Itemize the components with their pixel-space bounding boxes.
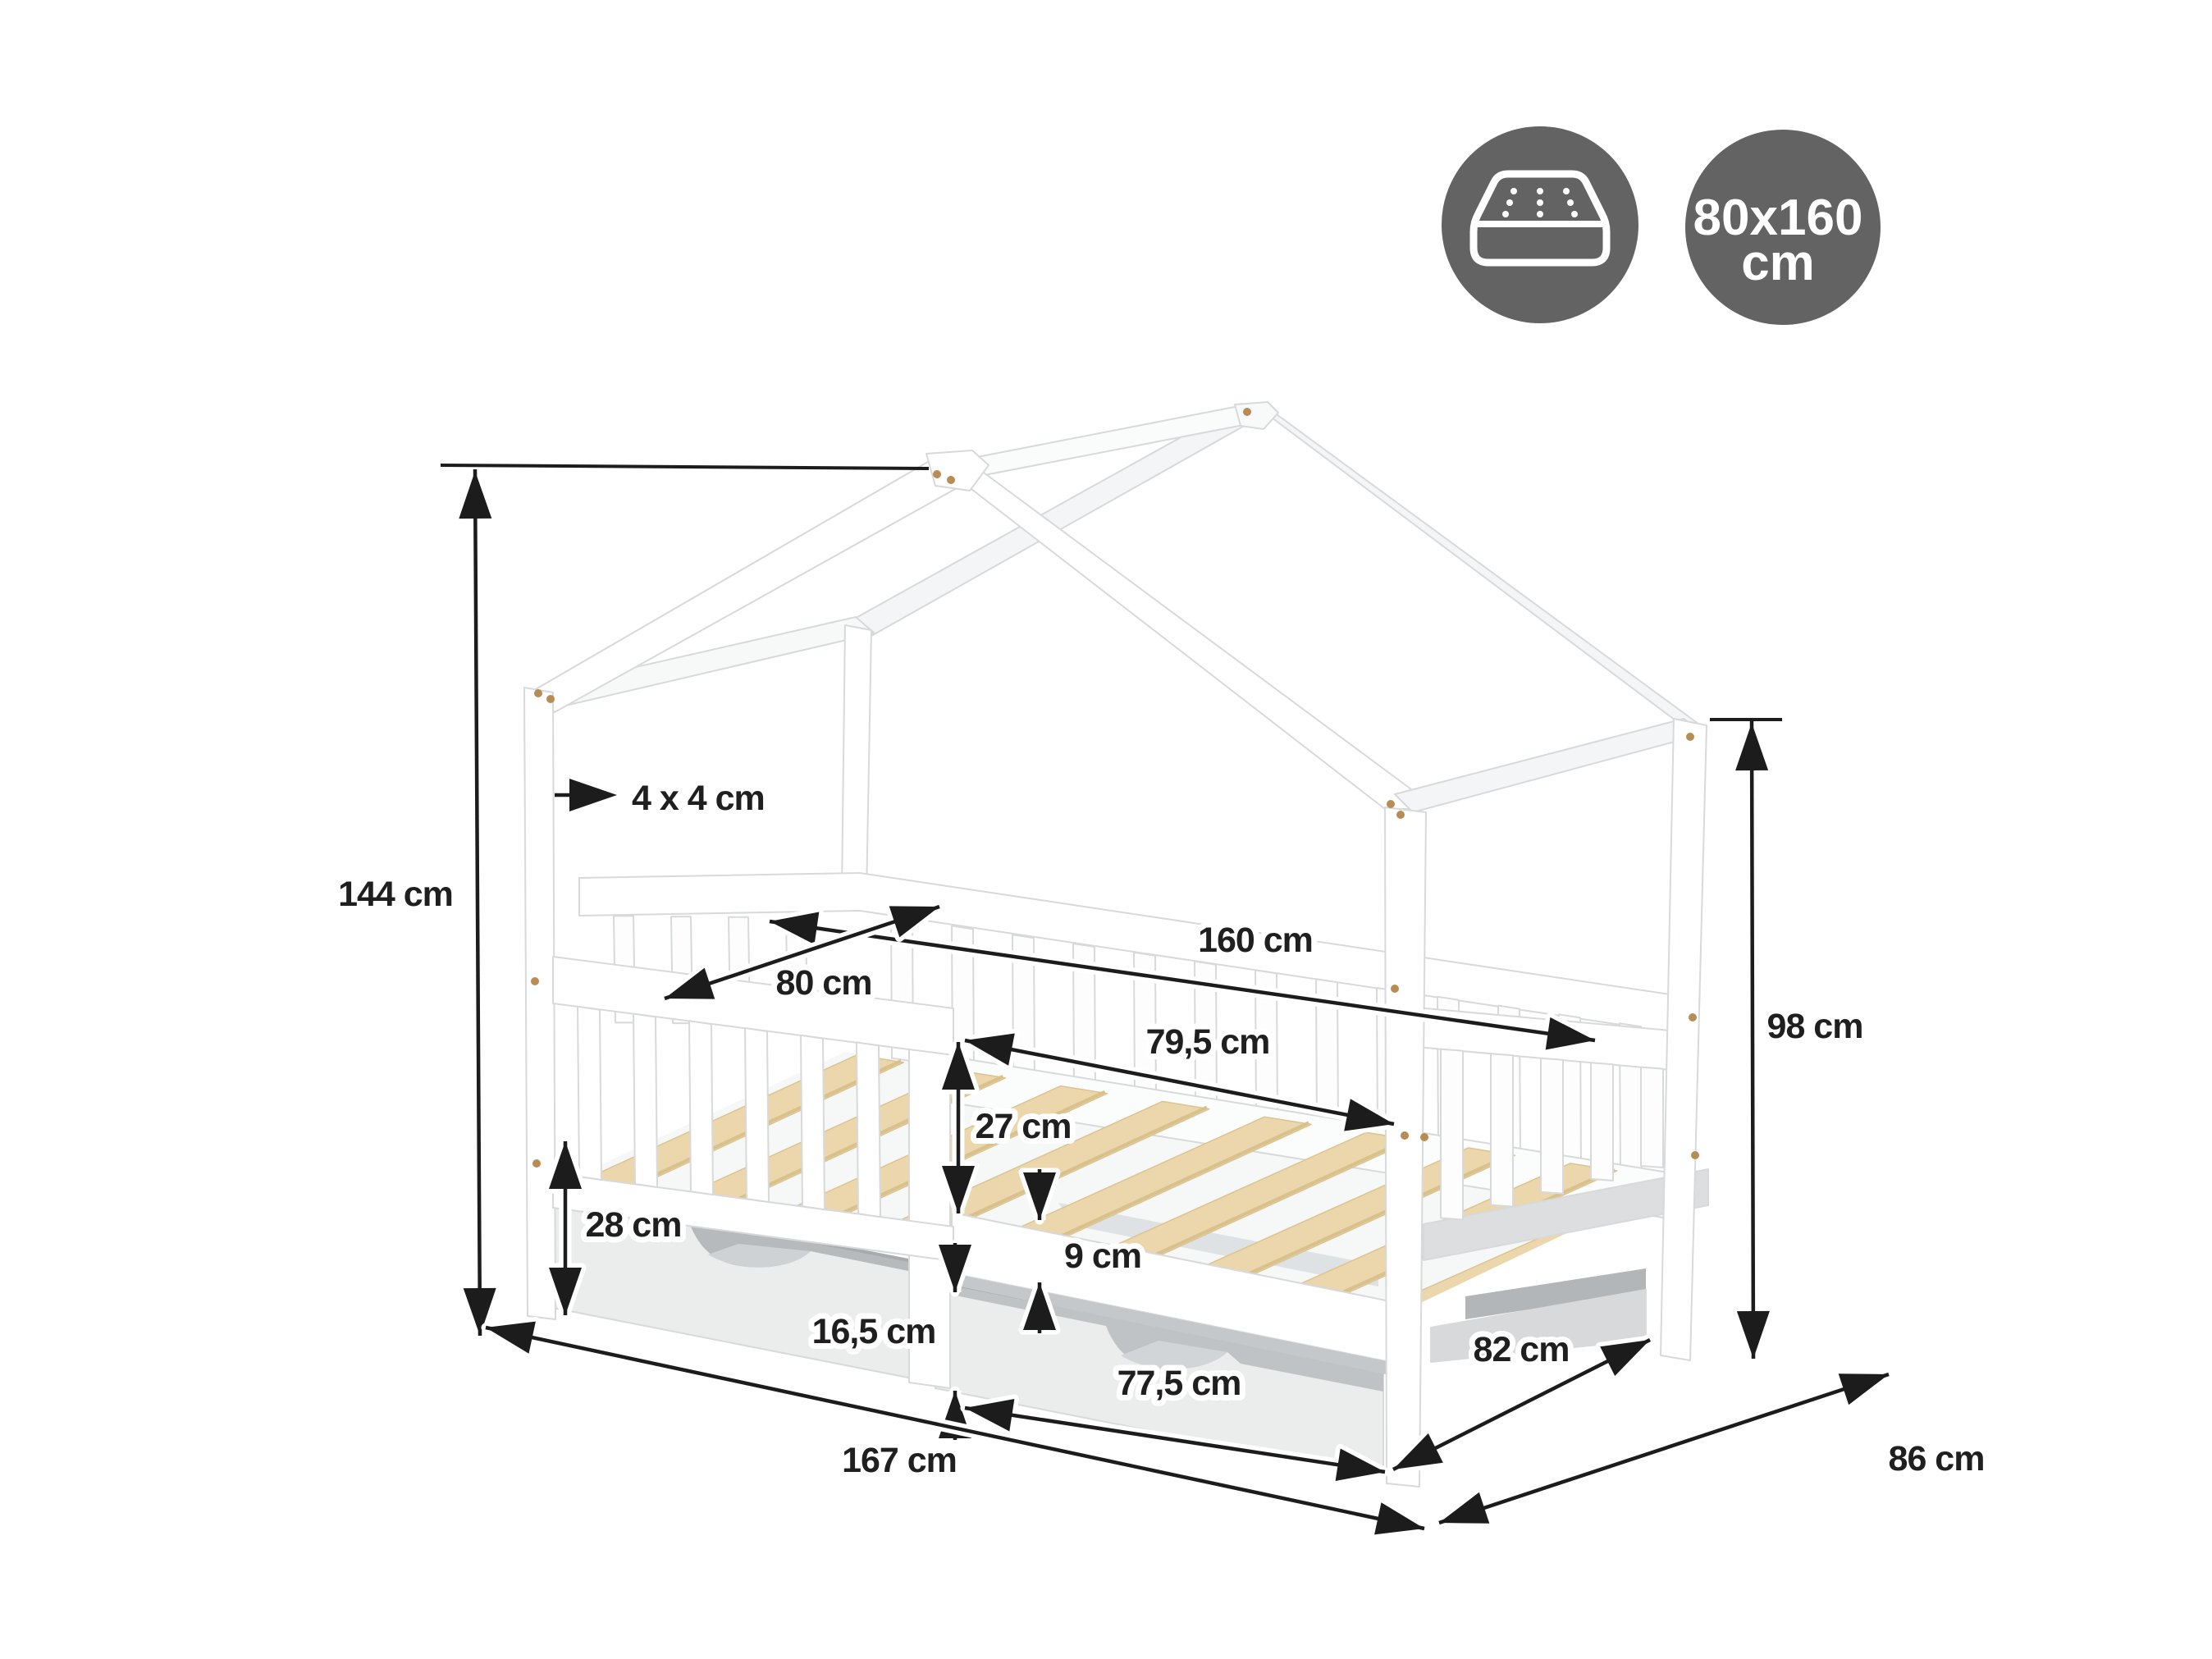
svg-text:28 cm: 28 cm (586, 1205, 682, 1245)
svg-text:82 cm: 82 cm (1474, 1330, 1570, 1369)
svg-text:98 cm: 98 cm (1767, 1007, 1863, 1046)
svg-text:160 cm: 160 cm (1198, 921, 1313, 960)
svg-text:167 cm: 167 cm (842, 1441, 957, 1480)
svg-text:80 cm: 80 cm (776, 963, 872, 1003)
svg-text:79,5 cm: 79,5 cm (1146, 1022, 1270, 1062)
svg-text:16,5 cm: 16,5 cm (812, 1312, 936, 1351)
svg-text:77,5 cm: 77,5 cm (1117, 1364, 1241, 1403)
svg-text:86 cm: 86 cm (1889, 1439, 1985, 1478)
svg-text:4 x 4 cm: 4 x 4 cm (632, 779, 765, 818)
svg-text:cm: cm (1741, 235, 1815, 291)
svg-text:9 cm: 9 cm (1064, 1236, 1141, 1276)
svg-text:27 cm: 27 cm (976, 1107, 1072, 1146)
svg-text:144 cm: 144 cm (338, 875, 453, 914)
